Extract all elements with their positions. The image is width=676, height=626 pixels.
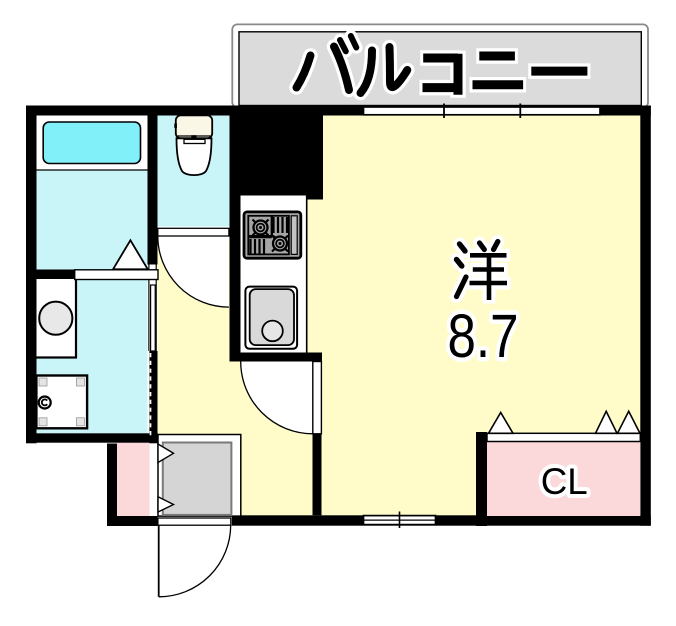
svg-text:CL: CL — [541, 461, 588, 502]
svg-text:8.7: 8.7 — [448, 302, 519, 370]
